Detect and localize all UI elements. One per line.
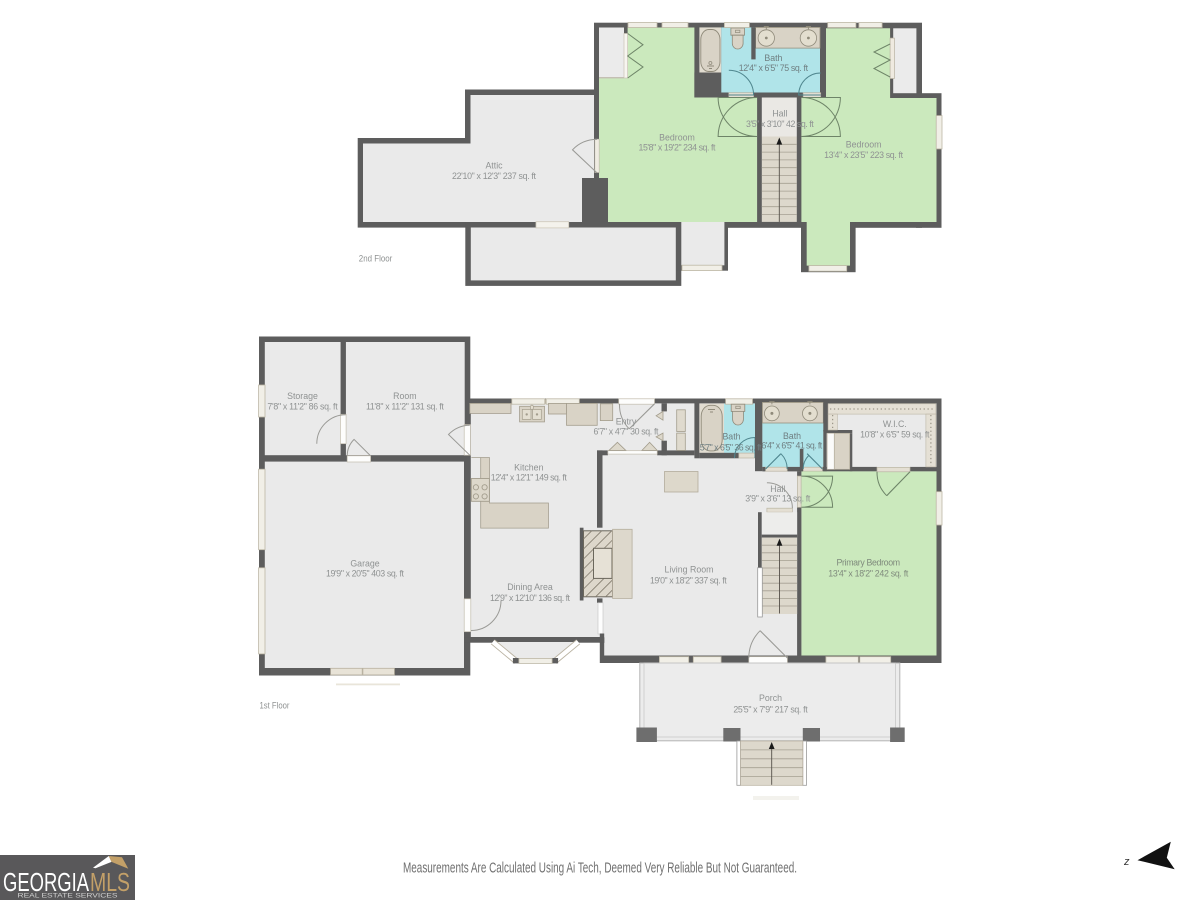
svg-text:3'5" x 3'10" 42 sq. ft: 3'5" x 3'10" 42 sq. ft	[746, 119, 814, 129]
svg-text:Bedroom: Bedroom	[846, 140, 882, 150]
svg-text:6'7" x 4'7" 30 sq. ft: 6'7" x 4'7" 30 sq. ft	[594, 426, 660, 436]
svg-text:11'8" x 11'2" 131 sq. ft: 11'8" x 11'2" 131 sq. ft	[366, 401, 444, 411]
svg-text:13'4" x 23'5" 223 sq. ft: 13'4" x 23'5" 223 sq. ft	[824, 150, 904, 160]
svg-text:Entry: Entry	[616, 416, 637, 426]
svg-text:Attic: Attic	[485, 161, 503, 171]
svg-text:3'9" x 3'6" 13 sq. ft: 3'9" x 3'6" 13 sq. ft	[745, 494, 811, 504]
svg-text:Primary Bedroom: Primary Bedroom	[837, 558, 901, 568]
svg-text:19'9" x 20'5" 403 sq. ft: 19'9" x 20'5" 403 sq. ft	[326, 569, 405, 579]
svg-text:1st Floor: 1st Floor	[260, 701, 290, 712]
svg-text:15'8" x 19'2" 234 sq. ft: 15'8" x 19'2" 234 sq. ft	[639, 143, 717, 153]
svg-text:Hall: Hall	[772, 109, 787, 119]
svg-text:Bath: Bath	[722, 431, 740, 441]
svg-text:5'7" x 6'5" 36 sq. ft: 5'7" x 6'5" 36 sq. ft	[700, 442, 762, 452]
svg-text:13'4" x 18'2" 242 sq. ft: 13'4" x 18'2" 242 sq. ft	[828, 569, 909, 579]
svg-text:REAL ESTATE SERVICES: REAL ESTATE SERVICES	[18, 893, 118, 900]
svg-text:Dining Area: Dining Area	[507, 582, 553, 592]
svg-text:12'9" x 12'10" 136 sq. ft: 12'9" x 12'10" 136 sq. ft	[490, 593, 571, 603]
svg-text:7'8" x 11'2" 86 sq. ft: 7'8" x 11'2" 86 sq. ft	[267, 401, 338, 411]
svg-text:Porch: Porch	[759, 693, 782, 703]
svg-text:Kitchen: Kitchen	[514, 462, 543, 472]
svg-text:19'0" x 18'2" 337 sq. ft: 19'0" x 18'2" 337 sq. ft	[650, 575, 727, 585]
svg-text:22'10" x 12'3" 237 sq. ft: 22'10" x 12'3" 237 sq. ft	[452, 171, 537, 181]
svg-text:10'8" x 6'5" 59 sq. ft: 10'8" x 6'5" 59 sq. ft	[860, 430, 930, 440]
svg-text:Room: Room	[393, 391, 416, 401]
svg-text:25'5" x 7'9" 217 sq. ft: 25'5" x 7'9" 217 sq. ft	[733, 705, 808, 715]
svg-text:2nd Floor: 2nd Floor	[359, 254, 393, 265]
svg-text:12'4" x 12'1" 149 sq. ft: 12'4" x 12'1" 149 sq. ft	[491, 473, 568, 483]
svg-text:Bath: Bath	[783, 431, 801, 441]
svg-text:Bedroom: Bedroom	[659, 133, 695, 143]
svg-text:Bath: Bath	[764, 53, 782, 63]
svg-text:Measurements Are Calculated Us: Measurements Are Calculated Using Ai Tec…	[403, 859, 797, 876]
svg-text:6'4" x 6'5" 41 sq. ft: 6'4" x 6'5" 41 sq. ft	[762, 441, 823, 451]
svg-text:12'4" x 6'5" 75 sq. ft: 12'4" x 6'5" 75 sq. ft	[739, 63, 809, 73]
svg-text:Hall: Hall	[770, 484, 785, 494]
svg-text:Storage: Storage	[287, 391, 318, 401]
svg-text:z: z	[1123, 856, 1130, 868]
svg-text:W.I.C.: W.I.C.	[883, 419, 907, 429]
svg-text:Garage: Garage	[350, 559, 379, 569]
svg-text:Living Room: Living Room	[665, 564, 714, 574]
